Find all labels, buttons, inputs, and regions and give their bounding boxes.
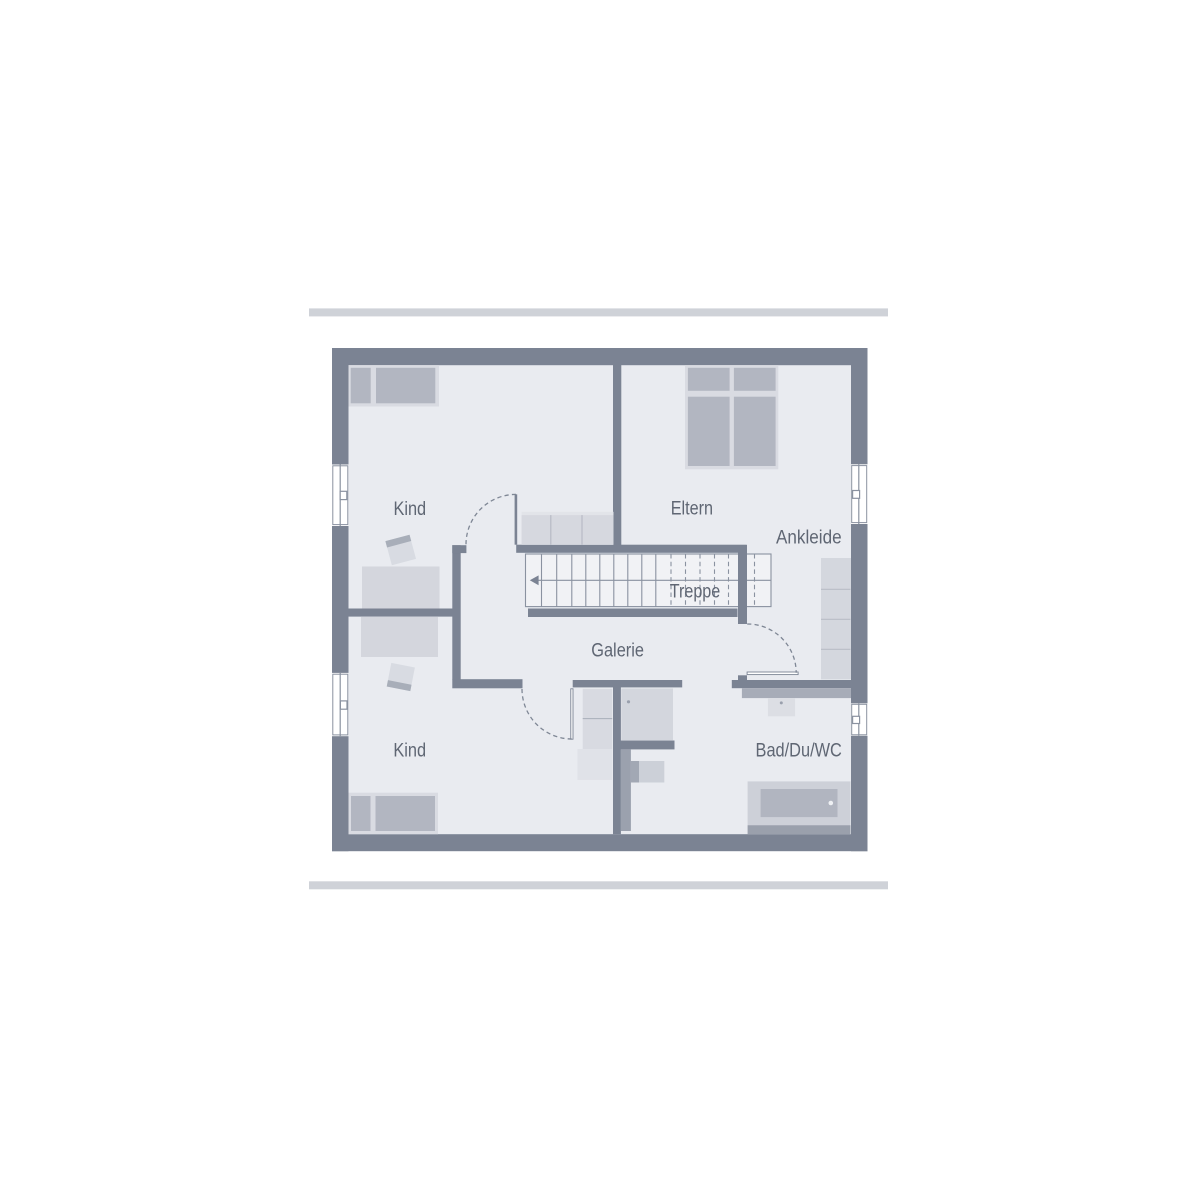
svg-text:Ankleide: Ankleide bbox=[776, 527, 842, 548]
svg-text:Bad/Du/WC: Bad/Du/WC bbox=[756, 741, 842, 762]
svg-text:Eltern: Eltern bbox=[671, 499, 713, 520]
svg-text:Galerie: Galerie bbox=[591, 641, 644, 662]
svg-text:Kind: Kind bbox=[393, 499, 426, 520]
svg-text:Treppe: Treppe bbox=[670, 582, 721, 603]
svg-text:Kind: Kind bbox=[393, 741, 426, 762]
